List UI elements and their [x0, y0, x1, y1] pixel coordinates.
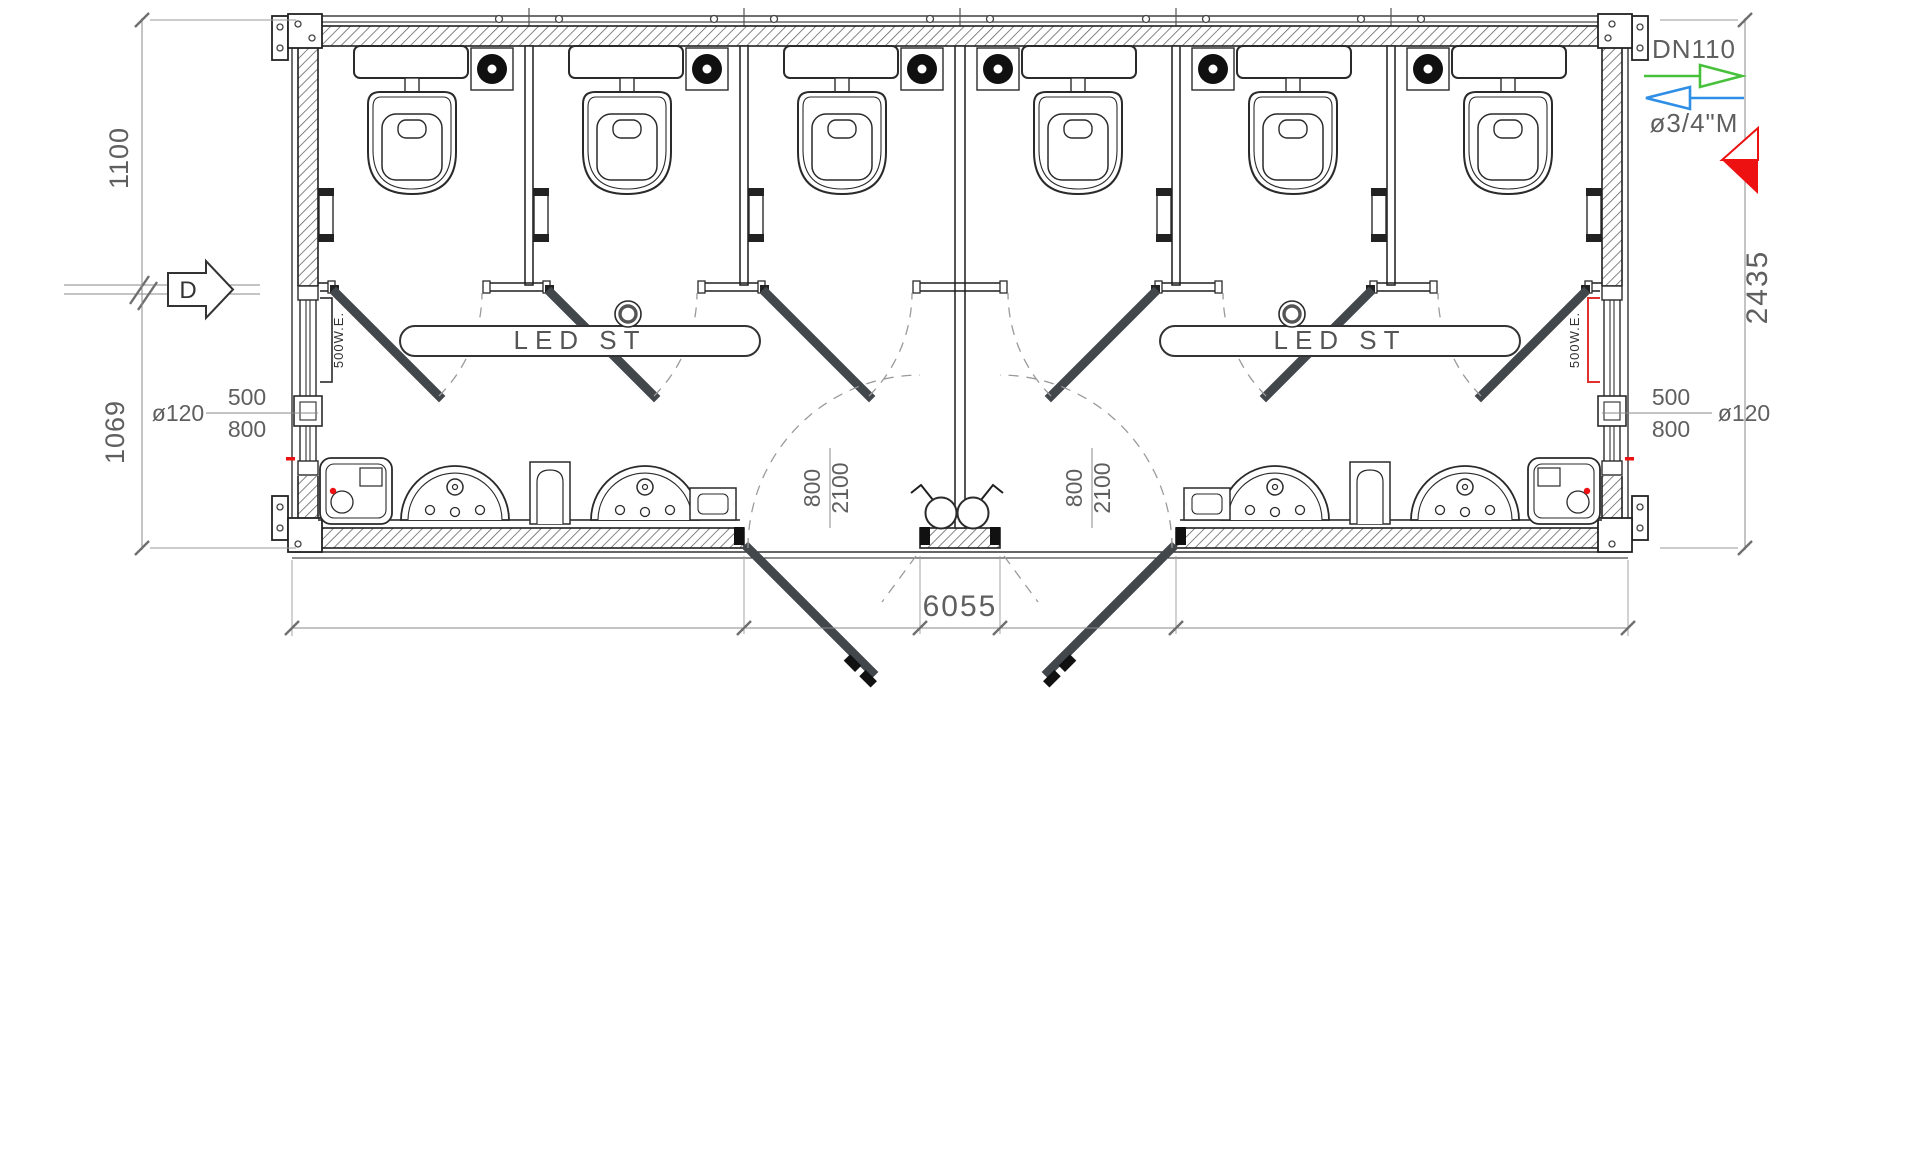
led-strip-right: LED ST	[1160, 325, 1520, 356]
hand-dryer-right	[1184, 488, 1230, 520]
dispenser-right	[1350, 462, 1390, 524]
toilet-stall-4	[977, 46, 1172, 242]
window-right-red-mark	[1625, 457, 1634, 461]
toilet-stall-3	[748, 46, 943, 242]
entry-door-left	[748, 375, 920, 688]
stall-partition	[740, 46, 748, 285]
dim-right-overall: 2435	[1741, 250, 1774, 325]
dim-bottom-overall: 6055	[923, 590, 998, 623]
stall-door-4	[1000, 281, 1162, 396]
toilet-stall-1	[318, 46, 513, 242]
door-height-label: 2100	[827, 462, 853, 513]
led-strip-right-label: LED ST	[1273, 325, 1406, 355]
door-width-label: 800	[799, 469, 825, 507]
door-width-label: 800	[1061, 469, 1087, 507]
wash-basin-1	[401, 466, 509, 520]
ceiling-light-left	[615, 301, 641, 327]
entry-door-right	[1000, 375, 1172, 688]
stall-partition	[525, 46, 533, 285]
drain-label: DN110	[1652, 34, 1736, 64]
heater-left-label: 500W.E.	[331, 312, 346, 368]
led-strip-left-label: LED ST	[513, 325, 646, 355]
toilet-stall-6	[1407, 46, 1602, 242]
hand-dryer-left	[690, 488, 736, 520]
window-width-label: 500	[1652, 384, 1690, 410]
entry-door-label-left: 800 2100	[799, 448, 853, 528]
stall-partition	[1172, 46, 1180, 285]
led-strip-left: LED ST	[400, 325, 760, 356]
supply-label: ø3/4"M	[1650, 108, 1739, 138]
heater-left: 500W.E.	[316, 298, 346, 382]
window-width-label: 500	[228, 384, 266, 410]
window-annotation-left: ø120 500 800	[152, 384, 318, 442]
door-height-label: 2100	[1089, 462, 1115, 513]
boiler-unit-left	[320, 458, 392, 524]
drain-arrow-icon	[1644, 65, 1742, 87]
vent-dia-label: ø120	[1718, 400, 1770, 426]
window-height-label: 800	[228, 416, 266, 442]
wash-basin-3	[1221, 466, 1329, 520]
section-line: D	[64, 261, 260, 318]
heater-right-label: 500W.E.	[1567, 312, 1582, 368]
stall-partition	[1387, 46, 1395, 285]
supply-arrow-icon	[1646, 87, 1744, 109]
dimension-bottom: 6055	[285, 556, 1635, 636]
boiler-unit-right	[1528, 458, 1600, 524]
floor-plan-drawing: LED ST LED ST 500W.E. 500W.E.	[0, 0, 1920, 1149]
dim-left-lower: 1069	[100, 400, 130, 464]
partition-top-ticks	[529, 8, 1391, 26]
container-walls	[298, 26, 1622, 548]
section-marker-label: D	[179, 277, 196, 304]
toilet-stall-5	[1192, 46, 1387, 242]
window-height-label: 800	[1652, 416, 1690, 442]
plumbing-annotations: DN110 ø3/4"M	[1644, 34, 1758, 194]
center-partition-wall	[955, 46, 965, 528]
vent-dia-label: ø120	[152, 400, 204, 426]
ceiling-light-right	[1279, 301, 1305, 327]
section-marker-d: D	[168, 261, 233, 318]
toilet-stall-2	[533, 46, 728, 242]
entry-door-label-right: 800 2100	[1061, 448, 1115, 528]
wash-basin-4	[1411, 466, 1519, 520]
dispenser-left	[530, 462, 570, 524]
window-left-red-mark	[286, 457, 295, 461]
stall-door-3	[758, 281, 920, 396]
dim-left-upper: 1100	[104, 127, 134, 189]
wash-basin-2	[591, 466, 699, 520]
